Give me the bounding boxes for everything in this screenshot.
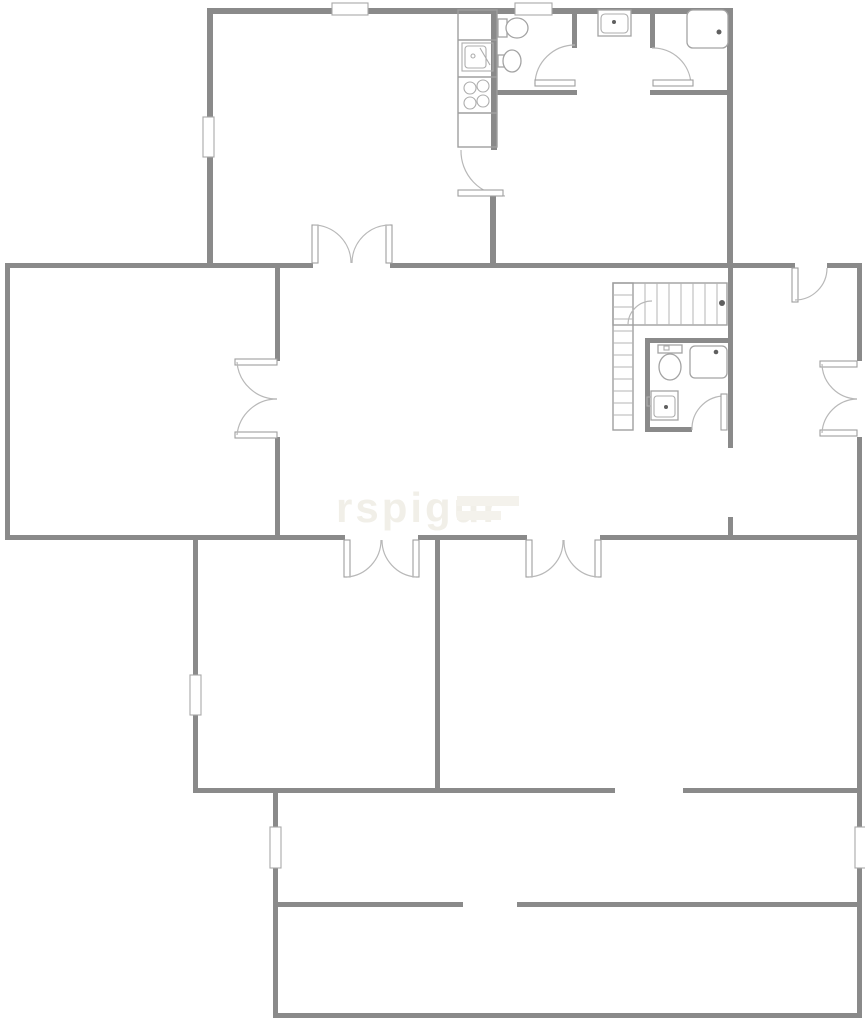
door-arc-bath1 [535, 45, 575, 84]
wall-left-room-right-lower [275, 437, 280, 540]
bidet-icon [498, 50, 521, 72]
window-left-wall-top-section [203, 117, 214, 157]
stove-icon [464, 80, 489, 109]
wall-center-divider [728, 268, 733, 448]
top-washroom [598, 10, 728, 86]
window-right-wall [855, 827, 865, 868]
door-right-section [792, 268, 827, 302]
washbasin-2-icon [647, 391, 678, 420]
top-bathroom [498, 18, 575, 86]
watermark-subtext-bar [457, 496, 519, 506]
double-door-lower-right-room [526, 540, 601, 577]
wall-mid-horizontal-a [5, 263, 313, 268]
watermark-subtext-bar [457, 511, 501, 520]
wall-bath2-top [645, 338, 732, 343]
wall-left-room-right-upper [275, 263, 280, 361]
wall-lower-divider [435, 540, 440, 793]
stair-direction-dot [719, 300, 725, 306]
wall-right-lower [857, 868, 862, 1018]
door-leaf-bath1 [535, 80, 575, 86]
shower-tray-2-icon [690, 346, 727, 378]
wall-right-middle [857, 437, 862, 827]
double-door-lower-left-room [344, 540, 419, 577]
center-bathroom [645, 338, 732, 432]
toilet-icon [498, 18, 528, 38]
wall-living-bottom-a [280, 535, 345, 540]
wall-kitchen-stub-upper [491, 93, 497, 150]
door-arc-kitchen [461, 150, 505, 196]
wall-terrace-divider-a [278, 902, 463, 907]
shower-icon [687, 10, 728, 48]
window-top-wall-2 [515, 3, 552, 15]
wall-lower-bottom-b [683, 788, 862, 793]
wall-mid-horizontal-c [827, 263, 862, 268]
double-door-right-room [820, 361, 857, 436]
wall-bottom-left [273, 790, 278, 1018]
wall-bath1-bottom [492, 90, 577, 95]
wall-showerroom-bottom [650, 90, 733, 95]
wall-bottom [273, 1013, 862, 1018]
double-door-left-room [235, 359, 277, 438]
watermark: rspigur [336, 484, 519, 531]
wall-bath2-left [645, 338, 650, 432]
watermark-text: rspigur [336, 484, 502, 531]
floorplan-canvas: rspigur [0, 0, 865, 1024]
door-arc-bath2 [692, 396, 722, 430]
wall-left-room-bottom [5, 535, 280, 540]
wall-living-bottom-b [418, 535, 527, 540]
wall-kitchen-stub-lower [490, 196, 496, 263]
wall-right-upper [857, 268, 862, 361]
wall-lowerleft-left [193, 535, 198, 793]
wall-terrace-divider-b [517, 902, 862, 907]
wall-bath2-bottom [645, 427, 692, 432]
door-leaf-kitchen [458, 190, 503, 196]
double-door-top-room [312, 225, 392, 263]
kitchen-sink-icon [462, 43, 493, 71]
bottom-band-walls [270, 790, 862, 1018]
washbasin-icon [598, 10, 631, 36]
window-top-wall-1 [332, 3, 368, 15]
door-leaf-showerroom [653, 80, 693, 86]
wall-lower-bottom-a [193, 788, 615, 793]
stair-left-flight [613, 283, 633, 430]
wall-top-right [727, 8, 733, 268]
door-leaf-bath2 [721, 394, 727, 430]
wall-showerroom-left [650, 8, 655, 48]
floorplan-drawing: rspigur [0, 0, 865, 1024]
wall-kitchen-divider [491, 8, 497, 95]
stair-rail-curve [628, 301, 652, 325]
wall-center-divider-stub [728, 517, 733, 540]
wall-mid-horizontal-b [390, 263, 795, 268]
wall-bath1-right-upper [572, 8, 577, 48]
door-arc-showerroom [652, 48, 691, 85]
window-bottom-left-wall [270, 827, 281, 868]
window-lowerleft-wall [190, 675, 201, 715]
kitchen-door [458, 150, 505, 196]
wall-left-room-left [5, 263, 10, 540]
toilet-2-icon [658, 345, 682, 380]
